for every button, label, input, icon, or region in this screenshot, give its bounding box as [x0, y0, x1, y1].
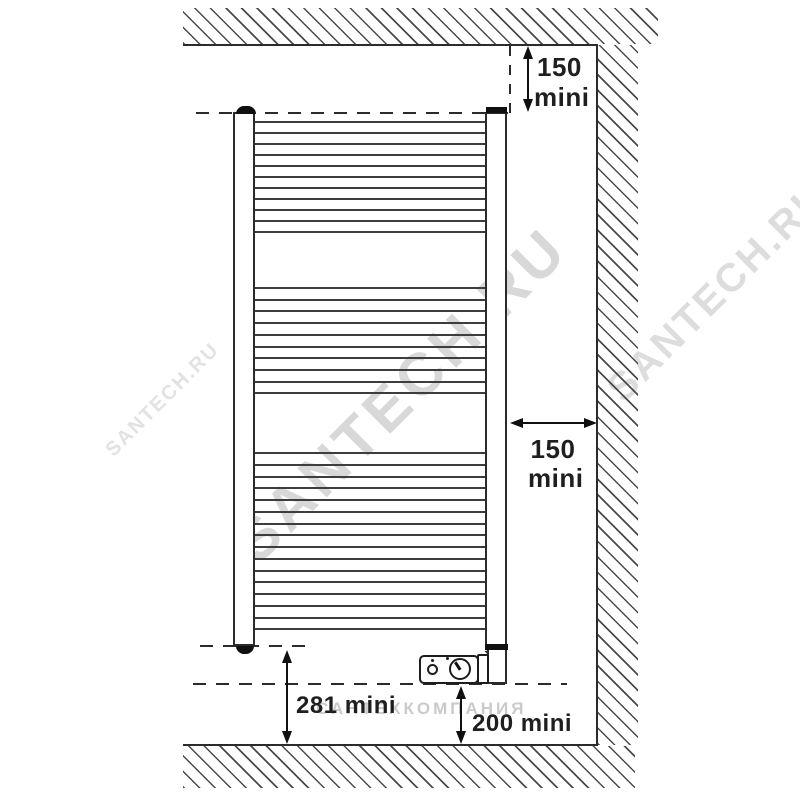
radiator-right-tube [485, 112, 507, 648]
radiator-rung [255, 499, 485, 501]
radiator-rung [255, 346, 485, 348]
arrowhead-down-icon [456, 731, 466, 744]
side-clearance-value: 150 [528, 434, 578, 465]
wall-line [596, 45, 598, 746]
radiator-left-tube [233, 112, 255, 646]
left-tube-top-cap [236, 106, 256, 114]
radiator-rung [255, 392, 485, 394]
radiator-rung [255, 558, 485, 560]
radiator-rung [255, 487, 485, 489]
dial-pointer-icon [454, 662, 461, 671]
ceiling-line [183, 44, 598, 46]
radiator-rung [255, 132, 485, 134]
watermark-small-left: SANTECH.RU [101, 338, 224, 461]
radiator-rung [255, 511, 485, 513]
radiator-rung [255, 143, 485, 145]
bottom-right-clearance-label: 200 mini [472, 710, 572, 738]
radiator-rung [255, 523, 485, 525]
arrowhead-right-icon [584, 418, 597, 428]
radiator-rung [255, 464, 485, 466]
top-clearance-value: 150 [537, 52, 582, 83]
floor-line [183, 744, 598, 746]
radiator-rung [255, 593, 485, 595]
radiator-rung [255, 546, 485, 548]
arrowhead-down-icon [523, 99, 533, 112]
radiator-rung [255, 220, 485, 222]
wall-hatch [598, 45, 638, 745]
bottom-left-value: 281 [296, 692, 338, 719]
arrowhead-up-icon [523, 46, 533, 59]
top-clearance-unit: mini [534, 82, 589, 113]
radiator-rung [255, 154, 485, 156]
radiator-rung [255, 176, 485, 178]
radiator-rung [255, 357, 485, 359]
right-tube-top-cap [486, 107, 507, 113]
bottom-left-clearance-label: 281 mini [296, 692, 396, 720]
arrowhead-up-icon [282, 650, 292, 663]
radiator-rung [255, 310, 485, 312]
side-clearance-unit: mini [528, 463, 578, 494]
dial-tick-dot [446, 657, 449, 660]
diagram-canvas: SANTECH.RU SANTECH.RU SANTECH.RU САНТЕХК… [0, 0, 800, 800]
radiator-rung [255, 534, 485, 536]
radiator-rung [255, 369, 485, 371]
arrowhead-left-icon [510, 418, 523, 428]
arrowhead-down-icon [282, 731, 292, 744]
bottom-clearance-dashed-line-2 [193, 683, 567, 685]
indicator-dot [431, 659, 434, 662]
bottom-clearance-dashed-line-1 [200, 645, 314, 647]
radiator-rung [255, 231, 485, 233]
radiator-rung [255, 476, 485, 478]
radiator-rung [255, 452, 485, 454]
bottom-left-unit: mini [345, 692, 396, 719]
radiator-rung [255, 628, 485, 630]
radiator-rung [255, 198, 485, 200]
radiator-rung [255, 581, 485, 583]
radiator-rung [255, 187, 485, 189]
radiator-rung [255, 381, 485, 383]
ceiling-hatch [183, 8, 658, 44]
radiator-rung [255, 121, 485, 123]
radiator-rung [255, 334, 485, 336]
indicator-light [427, 664, 438, 675]
bottom-right-value: 200 [472, 710, 514, 737]
radiator-rung [255, 287, 485, 289]
radiator-rung [255, 165, 485, 167]
radiator-right-tube-lower [487, 648, 507, 684]
arrowhead-up-icon [456, 686, 466, 699]
left-tube-bottom-cap [236, 646, 254, 654]
radiator-rung [255, 570, 485, 572]
radiator-rung [255, 617, 485, 619]
radiator-rung [255, 209, 485, 211]
radiator-rung [255, 322, 485, 324]
top-clearance-vertical-dashed-line [509, 46, 511, 113]
radiator-rung [255, 299, 485, 301]
thermostat-dial [449, 658, 471, 680]
right-tube-bottom-cap [485, 644, 508, 650]
floor-hatch [183, 746, 635, 788]
bottom-right-unit: mini [521, 710, 572, 737]
radiator-rung [255, 605, 485, 607]
